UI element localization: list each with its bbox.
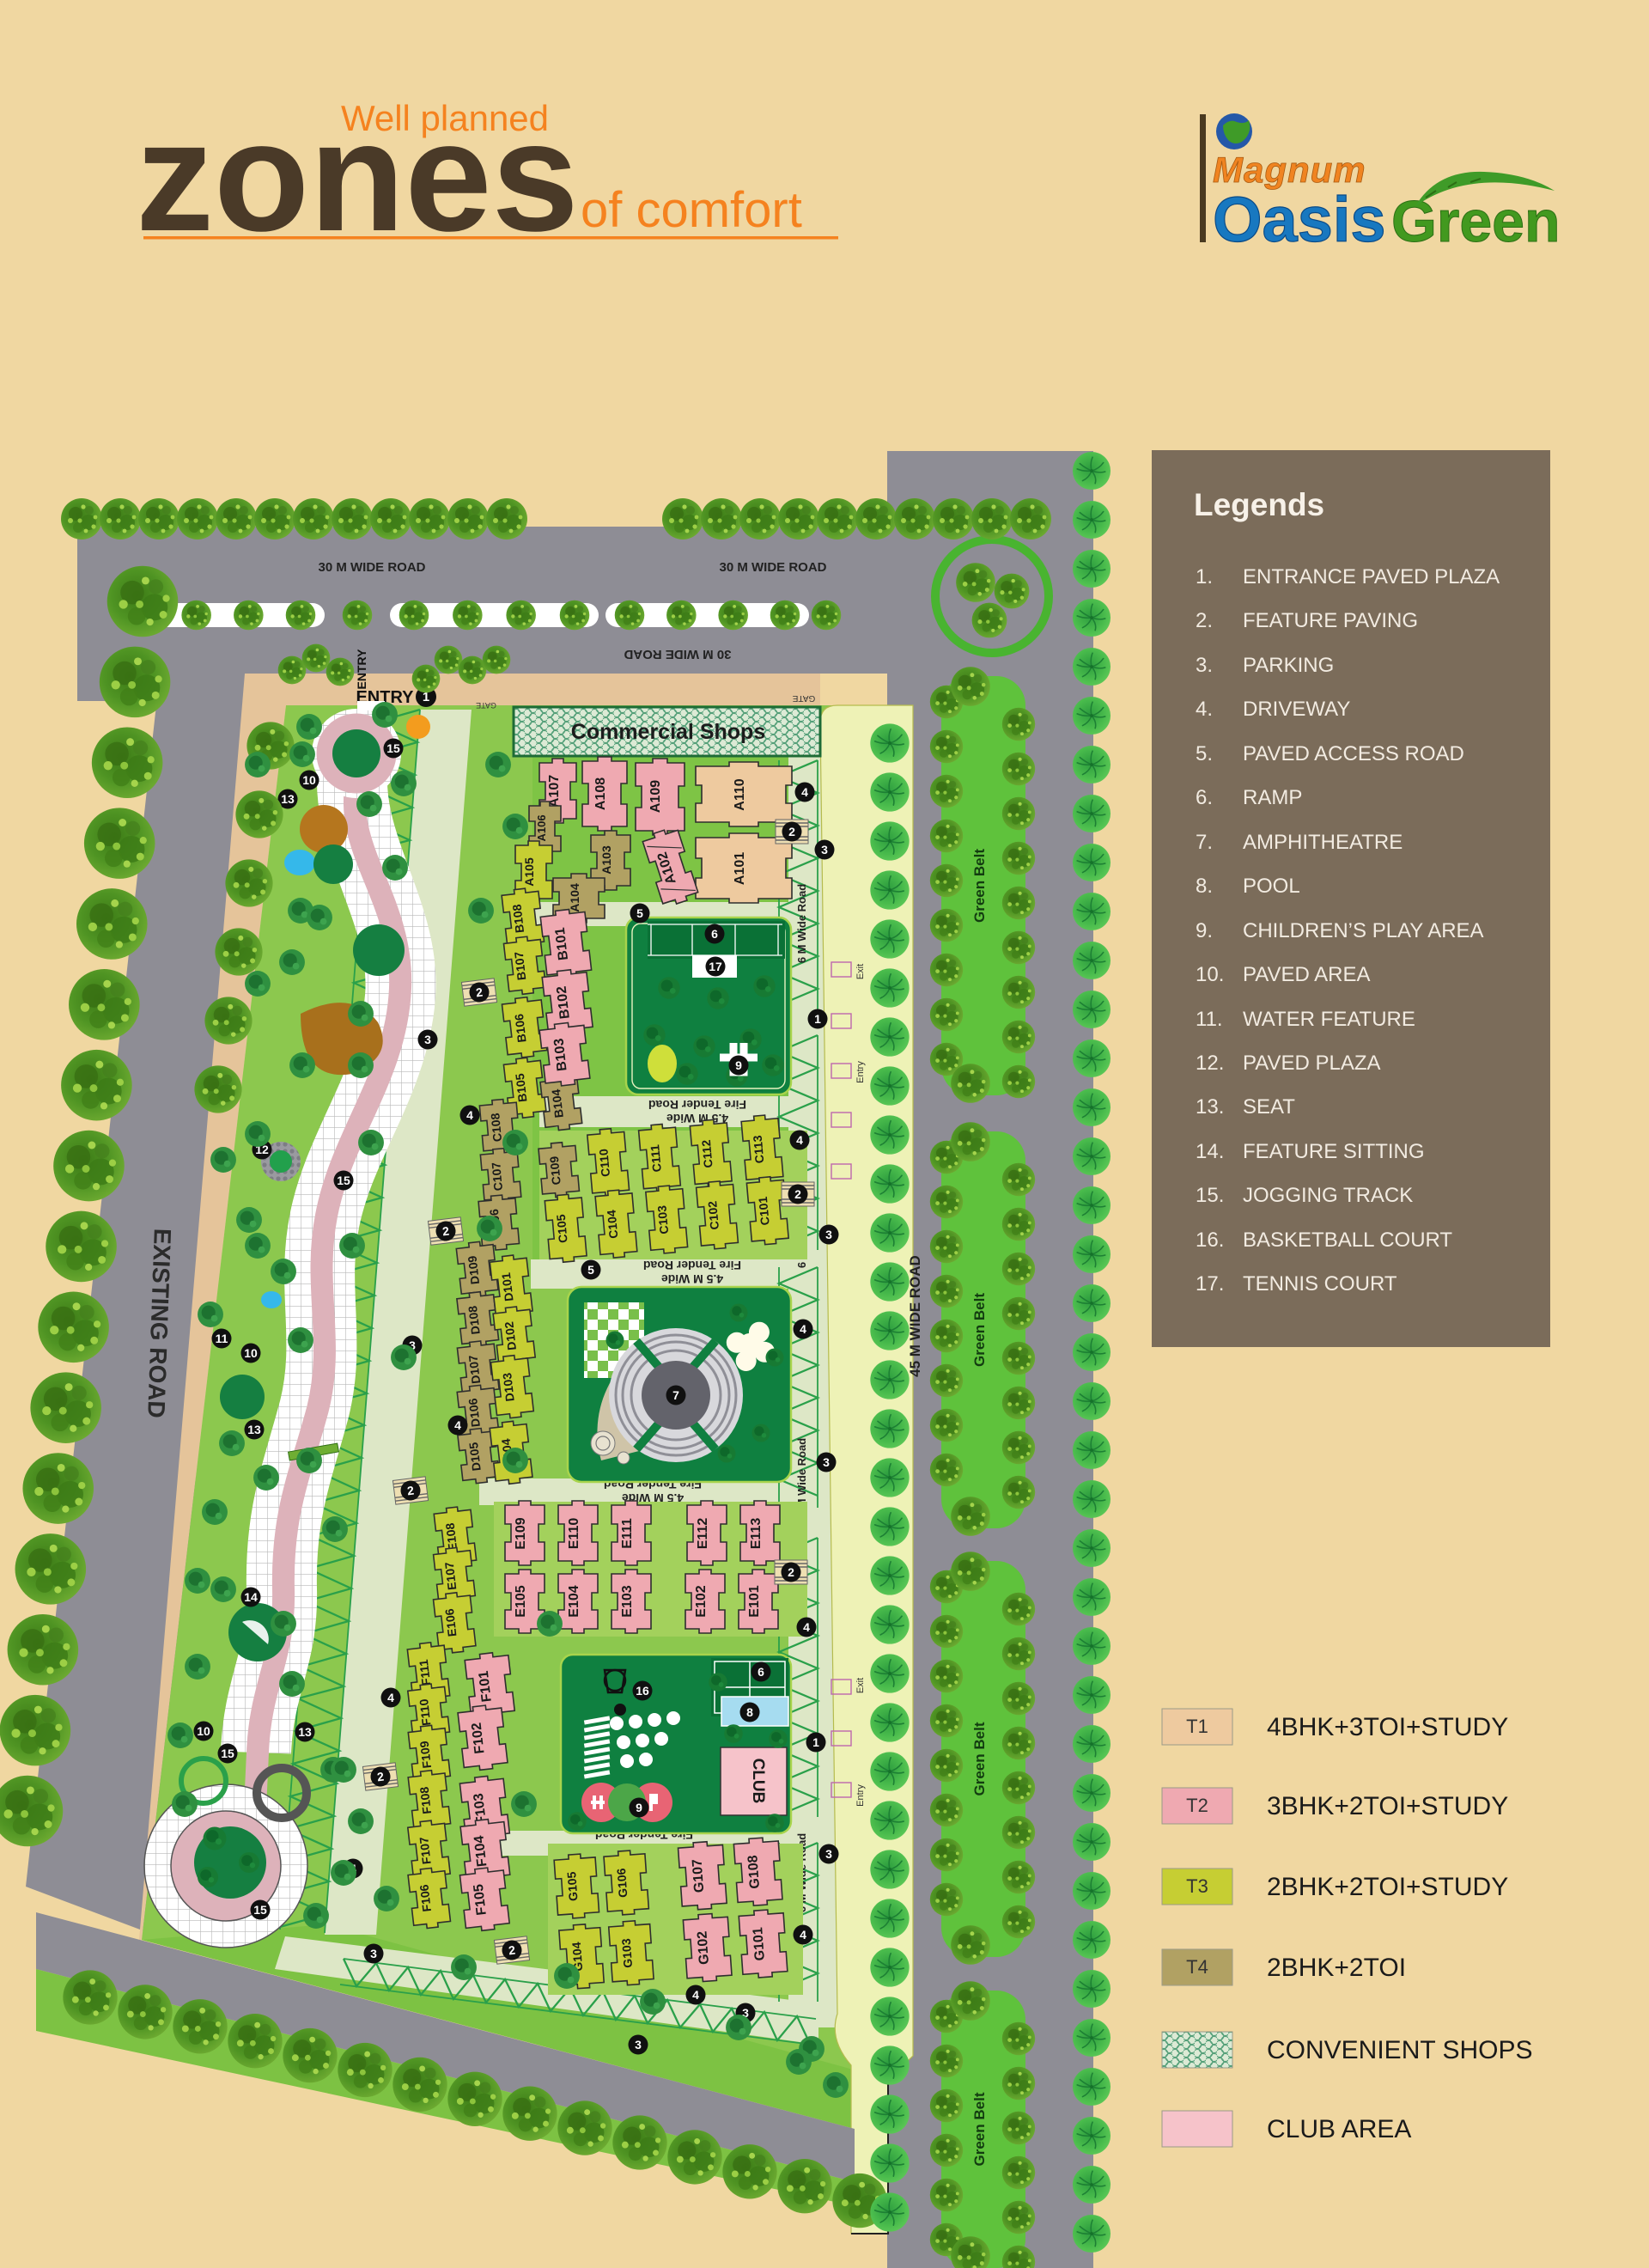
svg-text:E102: E102 — [694, 1585, 709, 1617]
svg-text:E103: E103 — [620, 1585, 635, 1617]
svg-text:2: 2 — [794, 1187, 801, 1201]
svg-text:JOGGING TRACK: JOGGING TRACK — [1243, 1184, 1413, 1207]
svg-text:4: 4 — [801, 785, 808, 799]
svg-text:G108: G108 — [745, 1855, 763, 1889]
svg-text:10: 10 — [244, 1346, 258, 1360]
svg-text:3: 3 — [821, 843, 828, 857]
svg-text:FEATURE PAVING: FEATURE PAVING — [1243, 609, 1418, 632]
svg-text:Green Belt: Green Belt — [971, 849, 988, 923]
svg-text:9.: 9. — [1196, 919, 1213, 942]
svg-text:3BHK+2TOI+STUDY: 3BHK+2TOI+STUDY — [1267, 1792, 1508, 1820]
svg-text:C113: C113 — [751, 1135, 767, 1164]
svg-text:A105: A105 — [522, 857, 536, 887]
svg-text:Green Belt: Green Belt — [971, 2092, 988, 2166]
svg-text:BASKETBALL COURT: BASKETBALL COURT — [1243, 1228, 1452, 1252]
svg-text:A109: A109 — [648, 780, 663, 813]
svg-text:6: 6 — [758, 1665, 764, 1679]
svg-text:PAVED AREA: PAVED AREA — [1243, 963, 1371, 986]
svg-text:C104: C104 — [605, 1209, 621, 1239]
svg-text:3: 3 — [424, 1033, 431, 1046]
svg-text:7: 7 — [672, 1388, 679, 1402]
svg-text:Exit: Exit — [855, 964, 866, 979]
svg-text:C102: C102 — [705, 1200, 721, 1230]
svg-text:Entry: Entry — [855, 1061, 866, 1083]
svg-text:5.: 5. — [1196, 742, 1213, 765]
svg-text:10.: 10. — [1196, 963, 1224, 986]
svg-text:G102: G102 — [695, 1930, 712, 1965]
svg-text:E112: E112 — [696, 1518, 710, 1550]
svg-text:GATE: GATE — [476, 701, 496, 710]
svg-text:E105: E105 — [514, 1585, 528, 1617]
svg-text:14.: 14. — [1196, 1140, 1224, 1163]
svg-text:16.: 16. — [1196, 1228, 1224, 1252]
svg-text:2BHK+2TOI+STUDY: 2BHK+2TOI+STUDY — [1267, 1873, 1508, 1901]
svg-text:8.: 8. — [1196, 875, 1213, 898]
svg-text:G103: G103 — [619, 1938, 635, 1968]
svg-text:4: 4 — [803, 1620, 810, 1634]
svg-text:Fire Tender Road: Fire Tender Road — [648, 1098, 746, 1112]
svg-text:4: 4 — [692, 1988, 699, 2002]
svg-text:C103: C103 — [654, 1204, 671, 1235]
svg-text:CHILDREN’S PLAY AREA: CHILDREN’S PLAY AREA — [1243, 919, 1484, 942]
svg-text:Green Belt: Green Belt — [971, 1722, 988, 1795]
svg-text:7.: 7. — [1196, 831, 1213, 854]
svg-text:4: 4 — [387, 1691, 394, 1704]
svg-text:4: 4 — [796, 1133, 803, 1147]
svg-text:PARKING: PARKING — [1243, 654, 1334, 677]
svg-text:3: 3 — [823, 1455, 830, 1469]
svg-text:1: 1 — [812, 1735, 819, 1749]
svg-text:G107: G107 — [690, 1858, 707, 1893]
svg-text:AMPHITHEATRE: AMPHITHEATRE — [1243, 831, 1403, 854]
svg-text:DRIVEWAY: DRIVEWAY — [1243, 698, 1350, 721]
svg-text:3: 3 — [825, 1847, 832, 1861]
svg-text:Entry: Entry — [855, 1784, 866, 1807]
svg-text:T1: T1 — [1186, 1716, 1208, 1737]
svg-text:2: 2 — [788, 825, 795, 838]
svg-text:A108: A108 — [593, 777, 608, 810]
svg-text:1.: 1. — [1196, 565, 1213, 588]
svg-text:E110: E110 — [567, 1518, 581, 1550]
svg-text:E104: E104 — [567, 1585, 581, 1617]
svg-text:2: 2 — [788, 1565, 794, 1579]
svg-text:45 M WIDE ROAD: 45 M WIDE ROAD — [907, 1255, 923, 1377]
svg-text:Legends: Legends — [1194, 487, 1324, 522]
svg-text:1: 1 — [814, 1012, 821, 1026]
svg-text:T4: T4 — [1186, 1956, 1208, 1978]
svg-text:30 M WIDE ROAD: 30 M WIDE ROAD — [624, 647, 731, 661]
svg-text:A110: A110 — [733, 778, 747, 810]
svg-text:A104: A104 — [568, 883, 581, 912]
svg-text:C108: C108 — [488, 1113, 504, 1143]
svg-text:Green Belt: Green Belt — [971, 1293, 988, 1367]
svg-text:C105: C105 — [554, 1214, 570, 1244]
svg-text:30 M WIDE ROAD: 30 M WIDE ROAD — [719, 560, 826, 575]
svg-text:6 M Wide Road: 6 M Wide Road — [795, 884, 808, 963]
svg-text:2BHK+2TOI: 2BHK+2TOI — [1267, 1954, 1406, 1982]
svg-text:3: 3 — [370, 1947, 377, 1960]
svg-text:9: 9 — [636, 1801, 642, 1814]
svg-text:15: 15 — [337, 1174, 350, 1187]
svg-text:15: 15 — [386, 741, 400, 755]
svg-text:14: 14 — [244, 1590, 258, 1604]
svg-text:TENNIS COURT: TENNIS COURT — [1243, 1272, 1397, 1296]
svg-text:30 M WIDE ROAD: 30 M WIDE ROAD — [318, 560, 425, 575]
svg-text:4: 4 — [800, 1322, 806, 1336]
svg-text:3: 3 — [825, 1228, 832, 1241]
svg-text:E113: E113 — [749, 1518, 764, 1550]
svg-text:2.: 2. — [1196, 609, 1213, 632]
svg-text:POOL: POOL — [1243, 875, 1300, 898]
svg-text:4.: 4. — [1196, 698, 1213, 721]
svg-text:6: 6 — [711, 927, 718, 941]
svg-text:13.: 13. — [1196, 1095, 1224, 1119]
svg-text:C107: C107 — [489, 1161, 505, 1192]
svg-text:12.: 12. — [1196, 1052, 1224, 1075]
svg-text:A101: A101 — [733, 852, 747, 885]
svg-text:9: 9 — [735, 1058, 742, 1072]
svg-text:T2: T2 — [1186, 1795, 1208, 1816]
svg-text:15: 15 — [221, 1747, 234, 1760]
svg-text:E101: E101 — [747, 1585, 762, 1617]
svg-text:Exit: Exit — [855, 1678, 866, 1693]
svg-text:CONVENIENT SHOPS: CONVENIENT SHOPS — [1267, 2036, 1533, 2064]
svg-text:C109: C109 — [547, 1155, 563, 1186]
svg-text:17.: 17. — [1196, 1272, 1224, 1296]
svg-text:C110: C110 — [596, 1148, 612, 1177]
svg-text:10: 10 — [302, 773, 316, 787]
svg-text:GATE: GATE — [792, 693, 815, 703]
svg-text:3.: 3. — [1196, 654, 1213, 677]
svg-text:E111: E111 — [620, 1518, 635, 1549]
svg-text:Green: Green — [1391, 189, 1561, 254]
svg-text:PAVED ACCESS ROAD: PAVED ACCESS ROAD — [1243, 742, 1464, 765]
svg-text:CLUB: CLUB — [749, 1759, 767, 1804]
svg-text:5: 5 — [636, 906, 643, 920]
svg-text:3: 3 — [635, 2038, 642, 2052]
svg-text:10: 10 — [197, 1724, 210, 1738]
svg-text:G101: G101 — [751, 1927, 768, 1961]
svg-text:PAVED PLAZA: PAVED PLAZA — [1243, 1052, 1381, 1075]
svg-text:4: 4 — [800, 1928, 806, 1942]
svg-text:4BHK+3TOI+STUDY: 4BHK+3TOI+STUDY — [1267, 1713, 1508, 1741]
svg-text:4.5 M Wide: 4.5 M Wide — [661, 1272, 723, 1286]
svg-text:4: 4 — [466, 1108, 473, 1122]
svg-text:8: 8 — [746, 1705, 753, 1719]
svg-text:Fire Tender Road: Fire Tender Road — [643, 1259, 741, 1272]
svg-text:C101: C101 — [756, 1196, 772, 1226]
svg-text:CLUB AREA: CLUB AREA — [1267, 2115, 1411, 2143]
svg-text:13: 13 — [281, 792, 295, 806]
svg-text:16: 16 — [636, 1684, 649, 1698]
svg-text:of comfort: of comfort — [581, 182, 802, 238]
svg-text:T3: T3 — [1186, 1875, 1208, 1897]
svg-text:5: 5 — [587, 1263, 594, 1277]
svg-text:SEAT: SEAT — [1243, 1095, 1295, 1119]
svg-text:WATER FEATURE: WATER FEATURE — [1243, 1008, 1415, 1031]
svg-text:A106: A106 — [535, 814, 548, 841]
svg-text:13: 13 — [298, 1725, 312, 1739]
svg-text:FEATURE SITTING: FEATURE SITTING — [1243, 1140, 1425, 1163]
svg-text:E109: E109 — [514, 1517, 528, 1549]
svg-text:G106: G106 — [614, 1868, 630, 1898]
svg-text:17: 17 — [709, 960, 722, 973]
svg-text:6.: 6. — [1196, 786, 1213, 809]
svg-text:15.: 15. — [1196, 1184, 1224, 1207]
svg-text:Oasis: Oasis — [1213, 184, 1386, 255]
svg-text:Commercial Shops: Commercial Shops — [571, 720, 765, 744]
svg-text:RAMP: RAMP — [1243, 786, 1302, 809]
svg-text:13: 13 — [247, 1423, 261, 1436]
svg-text:ENTRY: ENTRY — [355, 649, 368, 690]
svg-text:C112: C112 — [699, 1139, 715, 1168]
svg-text:4: 4 — [454, 1418, 461, 1432]
svg-text:C111: C111 — [648, 1144, 664, 1173]
svg-text:11: 11 — [216, 1332, 228, 1345]
svg-text:15: 15 — [253, 1903, 267, 1917]
svg-text:11.: 11. — [1196, 1008, 1223, 1031]
svg-text:ENTRANCE PAVED PLAZA: ENTRANCE PAVED PLAZA — [1243, 565, 1500, 588]
svg-text:A103: A103 — [599, 845, 613, 875]
svg-text:G105: G105 — [564, 1871, 580, 1901]
